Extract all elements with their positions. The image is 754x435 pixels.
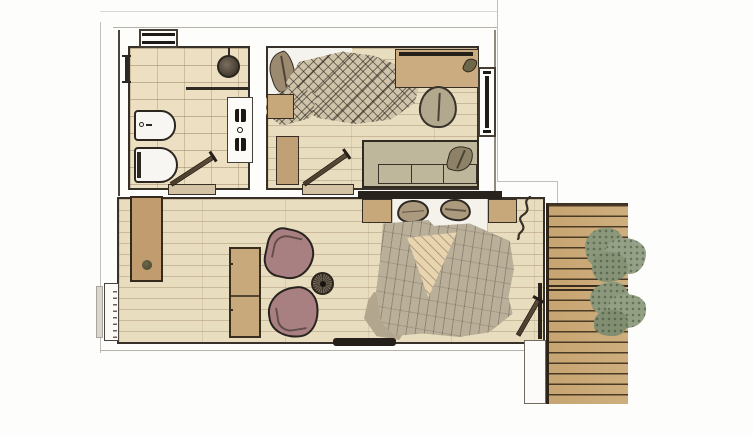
sketch-line-top <box>113 27 497 28</box>
shrub-upper-3 <box>592 252 628 282</box>
desk <box>395 49 479 88</box>
sideboard <box>130 196 163 282</box>
living-left-window-panel <box>96 286 103 338</box>
deck-pillar <box>524 340 546 404</box>
double-vanity <box>227 97 253 163</box>
wall-plant-squiggle <box>512 194 536 240</box>
vanity-sink-top <box>235 109 246 122</box>
shower-screen <box>186 87 250 90</box>
bathroom-door-threshold <box>168 184 216 195</box>
sketch-line-bottom <box>100 350 530 351</box>
console-table <box>229 247 261 338</box>
bidet-faucet <box>139 122 144 127</box>
outer-wall-left-bathroom <box>118 30 120 196</box>
floor-plan-canvas <box>0 0 754 435</box>
sketch-line-right-top <box>497 0 498 181</box>
media-bar <box>333 338 396 346</box>
nightstand-top-bedroom <box>267 94 294 119</box>
desk-plant <box>461 56 479 75</box>
desk-shelf-bar <box>399 52 473 56</box>
shower-head <box>217 55 240 78</box>
nightstand-left <box>362 199 392 223</box>
vanity-knob <box>237 127 243 133</box>
deck-door-jamb <box>538 283 542 339</box>
towel-rail <box>125 55 129 83</box>
dresser-top-bedroom <box>276 136 299 185</box>
living-left-window <box>104 283 119 341</box>
bedroom-door-threshold <box>302 184 354 195</box>
top-wall-window <box>139 29 178 48</box>
bedroom-right-window <box>478 67 496 137</box>
bed-wall-lintel <box>358 191 502 199</box>
sideboard-plant <box>142 260 152 270</box>
shrub-lower-3 <box>594 310 628 336</box>
bidet <box>134 110 176 141</box>
round-side-table <box>311 272 334 295</box>
daybed <box>362 140 479 188</box>
toilet-tank <box>137 152 141 178</box>
sketch-line-top-faint <box>100 11 497 12</box>
sketch-line-eaves-h <box>497 181 558 182</box>
sketch-line-eaves-v <box>557 181 558 204</box>
vanity-sink-bottom <box>235 138 246 151</box>
toilet <box>134 147 178 183</box>
